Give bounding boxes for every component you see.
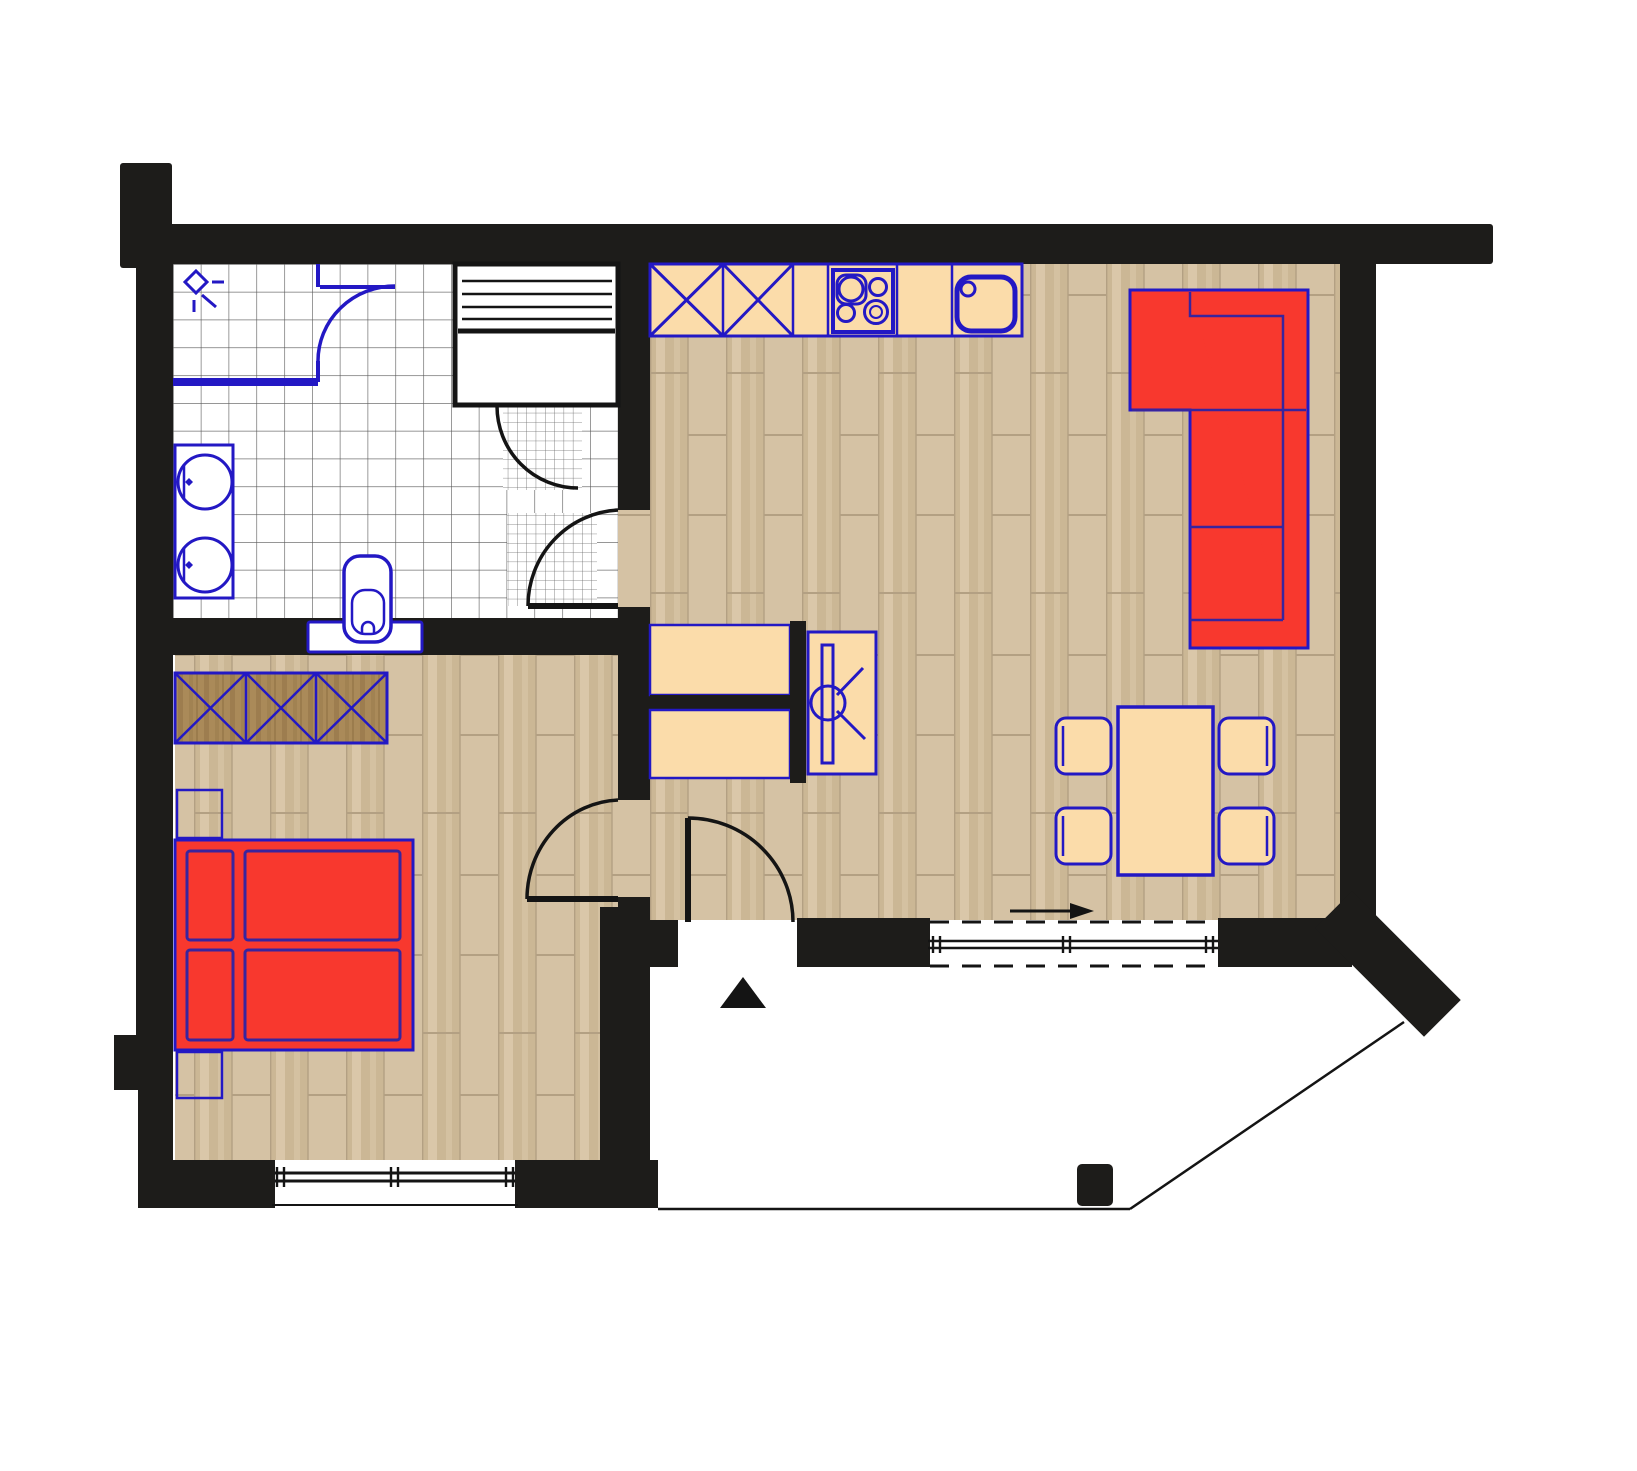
shower-fine-tile-patch-door <box>507 513 597 606</box>
floor-plan-canvas <box>0 0 1637 1471</box>
wall-entrance-left-jamb <box>650 920 678 967</box>
tv-console <box>808 632 876 774</box>
hall-cabinet-top <box>650 625 790 695</box>
wall-top <box>120 224 1493 264</box>
bedroom-window <box>272 1167 518 1205</box>
washbasin-counter <box>175 445 233 598</box>
hall-sideboard <box>650 621 876 783</box>
cabinet-divider-wall <box>650 695 790 710</box>
terrace-boundary-diagonal <box>1130 1022 1404 1209</box>
kitchen-counter <box>650 264 1022 336</box>
shower-fine-tile-patch-sauna <box>503 406 582 490</box>
terrace <box>658 1022 1404 1209</box>
wall-bedroom-bottom-left <box>138 1160 275 1208</box>
wall-living-bottom-left-chunk <box>797 918 930 967</box>
terrace-column <box>1077 1164 1113 1206</box>
double-bed <box>175 840 413 1050</box>
wall-bathroom-right <box>618 264 650 510</box>
wardrobe <box>175 673 387 743</box>
bedroom-doorway-threshold <box>618 800 650 897</box>
tv-screen-icon <box>822 645 833 763</box>
kitchen-counter-run <box>650 264 1022 336</box>
bathroom-doorway-threshold <box>618 510 650 607</box>
dining-table <box>1118 707 1213 875</box>
bed-mattress-bottom <box>245 950 400 1040</box>
sauna-cabin <box>455 264 618 405</box>
sauna <box>455 264 618 405</box>
window-tick-marks <box>277 1167 513 1187</box>
bed-pillow-bottom <box>187 950 233 1040</box>
bed-pillow-top <box>187 851 233 940</box>
floor-plan-drawing <box>0 0 1637 1471</box>
entrance-triangle-marker <box>720 977 766 1008</box>
bedroom <box>175 673 413 1098</box>
hall-cabinet-bottom <box>650 710 790 778</box>
sliding-door-tick-marks <box>933 936 1213 953</box>
tv-console-top <box>808 632 876 774</box>
wall-right <box>1340 264 1376 932</box>
cabinet-end-post <box>790 621 806 783</box>
wall-bedroom-right-lower <box>600 907 650 1208</box>
wall-left-jog <box>114 1035 173 1090</box>
wall-angled-corner <box>1352 928 1424 1000</box>
bed-mattress-top <box>245 851 400 940</box>
